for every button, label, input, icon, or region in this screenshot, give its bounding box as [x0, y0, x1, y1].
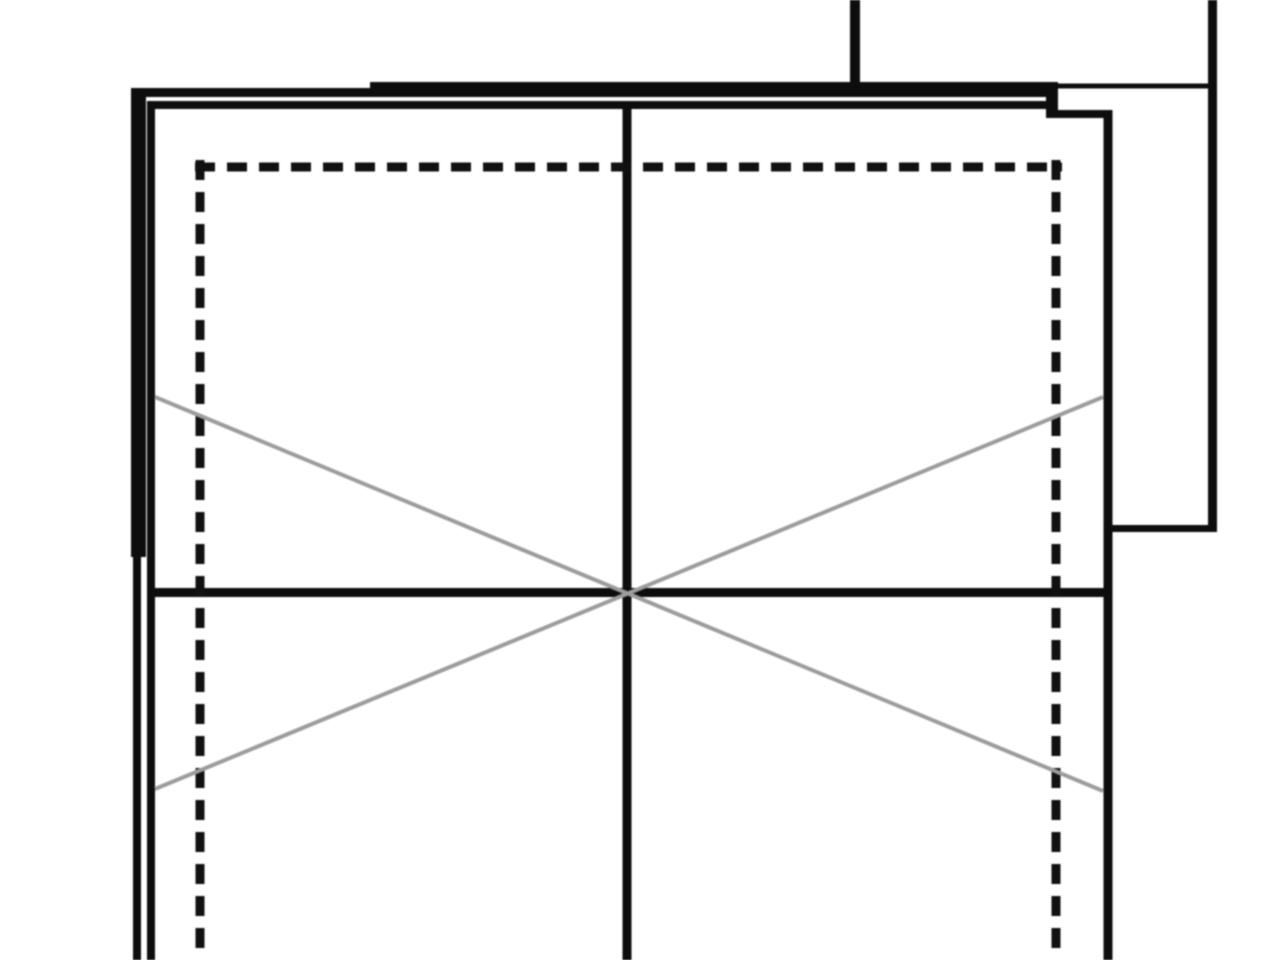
floor-plan-viewport	[0, 0, 1280, 960]
floor-plan-drawing	[0, 0, 1280, 960]
